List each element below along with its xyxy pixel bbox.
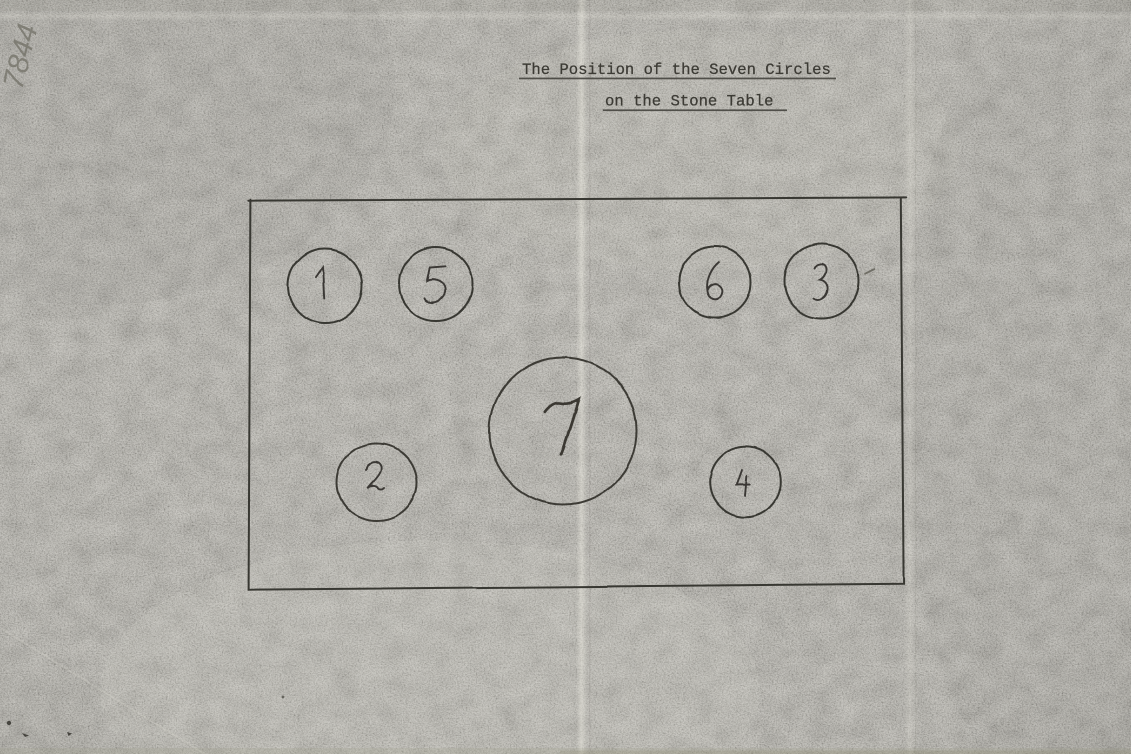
svg-text:on the Stone Table: on the Stone Table bbox=[605, 93, 773, 111]
svg-text:The Position of the Seven Circ: The Position of the Seven Circles bbox=[522, 61, 831, 79]
